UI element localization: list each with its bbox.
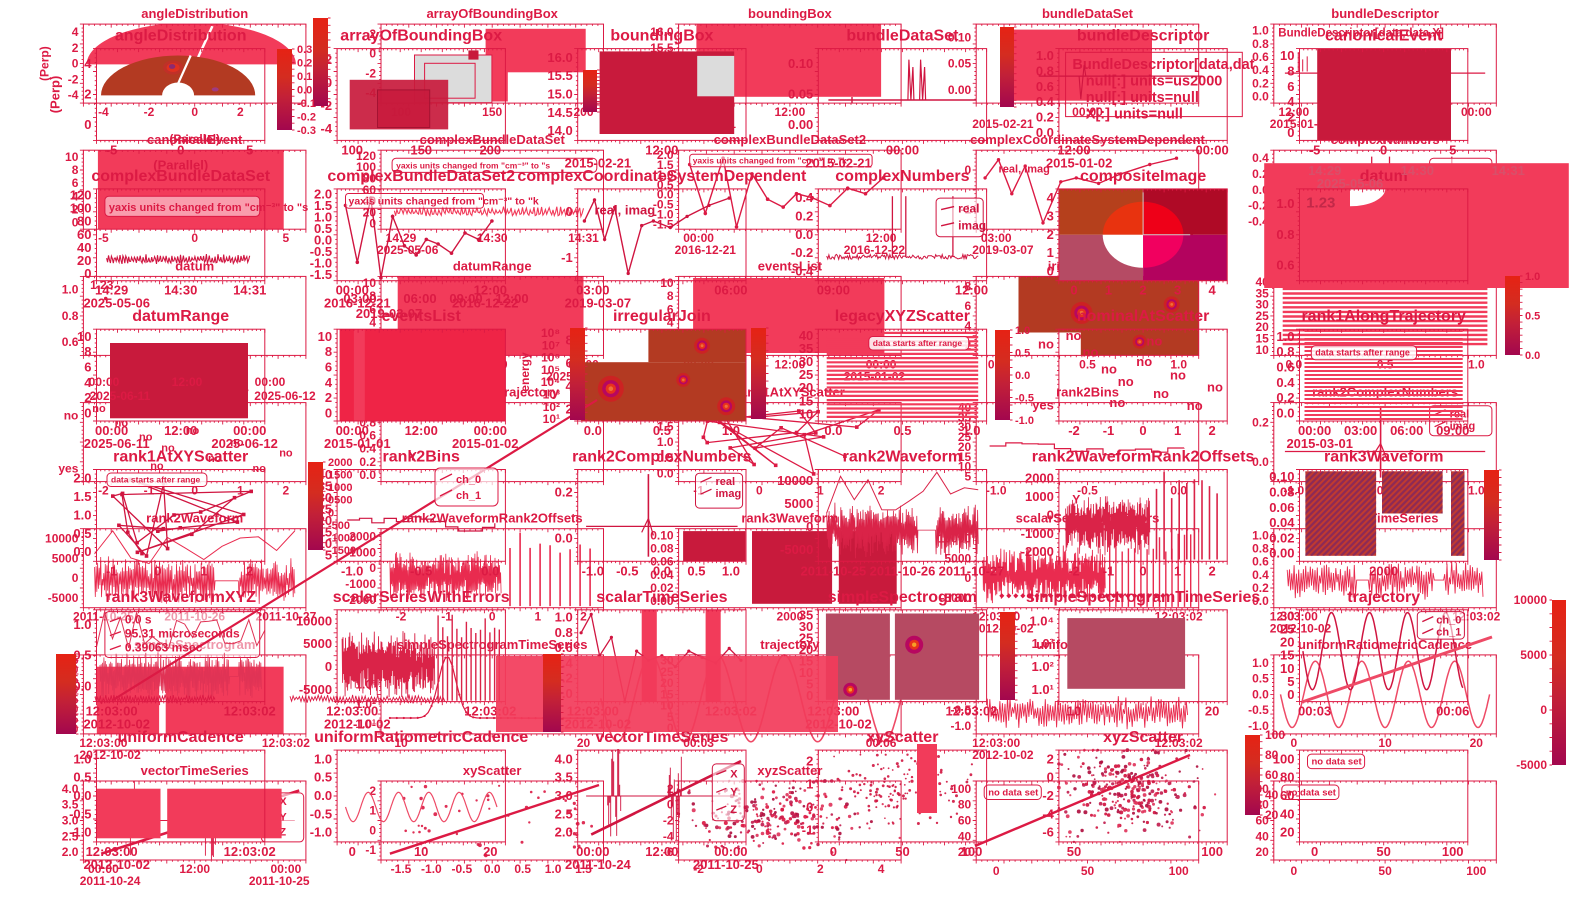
svg-text:0: 0 (369, 561, 376, 575)
svg-text:1.0: 1.0 (1468, 484, 1485, 498)
svg-text:100: 100 (1201, 844, 1223, 859)
svg-text:0: 0 (177, 142, 184, 157)
svg-text:0.05: 0.05 (788, 87, 813, 102)
svg-text:angleDistribution: angleDistribution (115, 28, 247, 45)
svg-text:rank2WaveformRank2Offsets: rank2WaveformRank2Offsets (402, 511, 583, 526)
svg-text:0.0: 0.0 (1015, 370, 1030, 382)
svg-text:2.5: 2.5 (555, 806, 573, 821)
svg-text:-1.0: -1.0 (986, 484, 1007, 498)
svg-text:12:00: 12:00 (179, 862, 210, 876)
svg-text:0: 0 (830, 844, 837, 859)
svg-text:0: 0 (1047, 264, 1054, 279)
svg-text:0: 0 (191, 231, 198, 245)
svg-text:rank2ComplexNumbers: rank2ComplexNumbers (572, 449, 752, 466)
svg-text:2: 2 (325, 390, 332, 405)
svg-text:-0.5: -0.5 (1015, 393, 1034, 405)
svg-text:20: 20 (1265, 808, 1279, 822)
svg-text:no: no (1066, 328, 1082, 343)
svg-text:12:03:02: 12:03:02 (262, 736, 310, 750)
svg-text:-0.5: -0.5 (1248, 703, 1269, 717)
svg-text:-1500: -1500 (328, 545, 356, 557)
svg-text:yaxis units changed from "cm⁻³: yaxis units changed from "cm⁻³" to "k (349, 196, 539, 208)
svg-text:6: 6 (325, 360, 332, 375)
svg-text:ch_0: ch_0 (456, 474, 481, 486)
svg-text:80: 80 (1265, 748, 1279, 762)
svg-text:2000: 2000 (1025, 471, 1054, 486)
svg-text:2015-01-02: 2015-01-02 (452, 436, 519, 451)
svg-text:14.5: 14.5 (547, 105, 572, 120)
svg-text:4: 4 (878, 862, 885, 876)
svg-text:0.05: 0.05 (948, 57, 972, 71)
svg-text:0.5: 0.5 (1252, 672, 1269, 686)
svg-text:0.8: 0.8 (62, 309, 79, 323)
svg-text:12:00: 12:00 (955, 283, 988, 298)
svg-text:-2: -2 (68, 72, 79, 86)
svg-text:100: 100 (951, 782, 971, 796)
svg-text:00:00: 00:00 (255, 375, 286, 389)
svg-text:5000: 5000 (784, 496, 813, 511)
svg-text:0: 0 (72, 57, 79, 71)
svg-text:0.5: 0.5 (1015, 348, 1030, 360)
svg-text:60: 60 (1265, 768, 1279, 782)
svg-text:2011-10-25: 2011-10-25 (693, 857, 759, 872)
svg-text:0.00: 0.00 (1269, 546, 1294, 561)
svg-text:0.0: 0.0 (1252, 90, 1269, 104)
svg-text:12:00: 12:00 (495, 291, 528, 306)
svg-text:0.5: 0.5 (314, 770, 332, 785)
svg-text:0: 0 (806, 519, 813, 534)
svg-text:0.00: 0.00 (788, 117, 813, 132)
svg-text:2000: 2000 (328, 457, 352, 469)
svg-text:0.0: 0.0 (314, 788, 332, 803)
svg-text:X: X (730, 769, 738, 781)
svg-text:(Perp): (Perp) (48, 76, 63, 114)
svg-text:-1.5: -1.5 (391, 862, 412, 876)
svg-text:0.2: 0.2 (1252, 415, 1269, 429)
svg-text:1: 1 (806, 777, 813, 792)
svg-text:10: 10 (318, 329, 332, 344)
svg-text:real, imag: real, imag (595, 203, 656, 218)
svg-text:-2: -2 (144, 105, 155, 119)
svg-text:boundingBox: boundingBox (610, 28, 713, 45)
svg-text:1.5: 1.5 (73, 489, 91, 504)
svg-text:4: 4 (84, 56, 92, 71)
svg-text:0: 0 (1380, 142, 1387, 157)
svg-text:2025-06-12: 2025-06-12 (254, 389, 316, 403)
svg-text:10: 10 (1067, 704, 1081, 719)
svg-text:12:00: 12:00 (172, 375, 203, 389)
svg-text:xyScatter: xyScatter (463, 763, 522, 778)
svg-text:1.0: 1.0 (73, 751, 91, 766)
svg-text:xyzScatter: xyzScatter (1103, 729, 1183, 746)
svg-text:0.5: 0.5 (1525, 311, 1540, 323)
svg-text:0.10: 0.10 (1269, 469, 1294, 484)
svg-text:2: 2 (580, 610, 587, 624)
svg-text:8: 8 (667, 289, 674, 303)
svg-text:4.0: 4.0 (555, 751, 573, 766)
svg-text:1.0: 1.0 (722, 563, 740, 578)
svg-text:0.5: 0.5 (73, 526, 91, 541)
svg-text:5: 5 (283, 231, 290, 245)
svg-text:0.0: 0.0 (824, 423, 842, 438)
svg-text:0.8: 0.8 (1036, 64, 1054, 79)
svg-text:bundleDataSet: bundleDataSet (846, 28, 959, 45)
svg-text:0.0: 0.0 (1276, 405, 1294, 420)
svg-text:14:30: 14:30 (1401, 163, 1434, 178)
svg-text:-2: -2 (1068, 423, 1080, 438)
svg-text:40: 40 (958, 829, 972, 843)
svg-text:energy: energy (518, 352, 532, 392)
svg-text:-0.2: -0.2 (297, 112, 316, 124)
svg-text:2: 2 (84, 87, 91, 102)
svg-text:datumRange: datumRange (453, 258, 532, 273)
svg-text:rank3Waveform: rank3Waveform (741, 511, 838, 526)
svg-text:100: 100 (1265, 728, 1285, 742)
svg-text:0.0: 0.0 (73, 788, 91, 803)
svg-text:00:00: 00:00 (1461, 105, 1492, 119)
svg-text:0: 0 (349, 844, 356, 859)
svg-text:1: 1 (1105, 283, 1112, 298)
svg-text:0.06: 0.06 (1269, 500, 1294, 515)
svg-text:rank2Waveform: rank2Waveform (843, 449, 962, 466)
svg-text:-4: -4 (68, 88, 79, 102)
svg-text:0: 0 (565, 204, 572, 219)
svg-text:imag: imag (958, 219, 986, 233)
svg-text:-2: -2 (1042, 788, 1054, 803)
svg-text:2015-02-21: 2015-02-21 (972, 117, 1034, 131)
svg-text:150: 150 (482, 105, 502, 119)
svg-text:2016-12-21: 2016-12-21 (675, 243, 737, 257)
svg-text:1.0: 1.0 (62, 283, 79, 297)
svg-text:no: no (1170, 368, 1186, 383)
svg-text:real: real (958, 202, 979, 216)
svg-text:2: 2 (72, 41, 79, 55)
svg-text:1: 1 (1047, 245, 1054, 260)
svg-text:10: 10 (65, 150, 79, 164)
svg-text:arrayOfBoundingBox: arrayOfBoundingBox (340, 28, 502, 45)
svg-text:-1000: -1000 (1021, 526, 1054, 541)
svg-text:10: 10 (1255, 343, 1269, 357)
svg-text:no data set: no data set (1312, 757, 1363, 768)
svg-text:14:30: 14:30 (477, 231, 508, 245)
svg-text:-0.1: -0.1 (297, 98, 316, 110)
svg-text:1.0³: 1.0³ (1031, 636, 1054, 651)
svg-text:-1.0: -1.0 (69, 825, 91, 840)
svg-text:-5: -5 (106, 142, 118, 157)
svg-text:0: 0 (1139, 563, 1146, 578)
svg-text:0.04: 0.04 (1269, 515, 1295, 530)
svg-text:1: 1 (200, 563, 207, 578)
svg-text:10: 10 (799, 406, 813, 421)
svg-text:0.6: 0.6 (1276, 360, 1294, 375)
svg-text:100: 100 (341, 142, 363, 157)
svg-text:12:00: 12:00 (645, 142, 678, 157)
svg-text:50: 50 (895, 844, 909, 859)
svg-text:4: 4 (1208, 283, 1216, 298)
svg-text:60: 60 (1280, 788, 1294, 803)
svg-text:6: 6 (1287, 79, 1294, 94)
svg-text:2: 2 (369, 784, 376, 798)
svg-text:0.4: 0.4 (1252, 151, 1269, 165)
svg-text:-2000: -2000 (1021, 544, 1054, 559)
svg-text:no: no (64, 409, 79, 423)
svg-text:-1: -1 (561, 250, 573, 265)
svg-text:0: 0 (1311, 844, 1318, 859)
svg-text:0.4: 0.4 (795, 190, 814, 205)
svg-text:boundingBox: boundingBox (748, 6, 833, 21)
svg-text:2.0: 2.0 (555, 825, 573, 840)
svg-text:10¹: 10¹ (543, 412, 560, 426)
svg-text:0: 0 (1290, 736, 1297, 750)
svg-text:0: 0 (325, 659, 332, 674)
svg-text:06:00: 06:00 (1390, 423, 1423, 438)
svg-text:2: 2 (246, 563, 253, 578)
svg-text:bundleDescriptor: bundleDescriptor (1077, 28, 1209, 45)
svg-text:0.00: 0.00 (948, 83, 972, 97)
svg-text:-2: -2 (663, 814, 674, 828)
svg-text:0.3: 0.3 (297, 44, 312, 56)
svg-text:15.0: 15.0 (547, 87, 572, 102)
svg-text:bundleDescriptor: bundleDescriptor (1331, 6, 1439, 21)
svg-text:0.8: 0.8 (1252, 542, 1269, 556)
svg-text:0.5: 0.5 (687, 563, 705, 578)
svg-text:5: 5 (246, 142, 253, 157)
svg-text:12:03:02: 12:03:02 (224, 844, 276, 859)
svg-text:real: real (716, 476, 736, 488)
svg-text:complexCoordinateSystemDepende: complexCoordinateSystemDependent (517, 168, 807, 185)
svg-text:3: 3 (1174, 283, 1181, 298)
svg-text:150: 150 (410, 142, 432, 157)
svg-text:00:00: 00:00 (886, 142, 919, 157)
svg-text:complexNumbers: complexNumbers (835, 168, 969, 185)
svg-text:0: 0 (1290, 864, 1297, 878)
svg-text:-1.0: -1.0 (951, 719, 972, 733)
svg-text:09:00: 09:00 (449, 291, 482, 306)
svg-text:trajectory: trajectory (1347, 589, 1420, 606)
svg-text:2012-10-02: 2012-10-02 (83, 857, 150, 872)
svg-text:nominalAtScatter: nominalAtScatter (1077, 308, 1209, 325)
svg-text:2: 2 (817, 862, 824, 876)
svg-text:vectorTimeSeries: vectorTimeSeries (141, 763, 249, 778)
svg-text:4: 4 (325, 375, 333, 390)
svg-text:0.4: 0.4 (1276, 375, 1295, 390)
svg-text:0.0: 0.0 (584, 423, 602, 438)
svg-text:no: no (1153, 386, 1169, 401)
svg-text:2: 2 (237, 105, 244, 119)
svg-text:1.0: 1.0 (1036, 48, 1054, 63)
svg-text:2: 2 (1208, 423, 1215, 438)
svg-text:1: 1 (1174, 423, 1181, 438)
svg-text:3: 3 (1047, 208, 1054, 223)
svg-text:-1: -1 (106, 563, 118, 578)
svg-text:0.0: 0.0 (481, 563, 499, 578)
svg-text:-5000: -5000 (299, 682, 332, 697)
svg-text:2011-10-25: 2011-10-25 (801, 563, 867, 578)
svg-text:-0.2: -0.2 (791, 245, 813, 260)
svg-text:uniformCadence: uniformCadence (118, 729, 244, 746)
svg-text:0.0: 0.0 (1252, 687, 1269, 701)
svg-text:16.0: 16.0 (547, 50, 572, 65)
svg-text:canonicalEvent: canonicalEvent (1325, 28, 1443, 45)
svg-text:-4: -4 (98, 105, 109, 119)
svg-text:2019-03-07: 2019-03-07 (972, 243, 1034, 257)
svg-text:1.0: 1.0 (314, 751, 332, 766)
svg-text:20: 20 (1255, 845, 1269, 859)
svg-text:0.4: 0.4 (1036, 94, 1055, 109)
svg-text:20: 20 (1205, 704, 1219, 719)
svg-text:-4: -4 (663, 829, 674, 843)
svg-text:X[:] units=null: X[:] units=null (1086, 106, 1183, 122)
svg-text:0: 0 (1047, 507, 1054, 522)
svg-text:00:03: 00:03 (1298, 704, 1331, 719)
svg-text:0.08: 0.08 (650, 542, 674, 556)
svg-text:2000: 2000 (1369, 563, 1398, 578)
svg-text:compositeImage: compositeImage (1080, 168, 1206, 185)
svg-text:1.0: 1.0 (73, 617, 91, 632)
svg-text:-2: -2 (396, 610, 407, 624)
svg-text:8: 8 (1287, 64, 1294, 79)
svg-text:-0.4: -0.4 (791, 264, 814, 279)
svg-text:1.0: 1.0 (1252, 24, 1269, 38)
svg-text:8: 8 (84, 344, 91, 359)
svg-text:0: 0 (1540, 703, 1547, 717)
svg-text:12:03:02: 12:03:02 (945, 704, 997, 719)
svg-text:0.5: 0.5 (514, 862, 531, 876)
svg-text:real, imag: real, imag (999, 163, 1050, 175)
svg-text:5000: 5000 (303, 636, 332, 651)
svg-text:-5000: -5000 (1516, 758, 1547, 772)
svg-text:200: 200 (479, 142, 501, 157)
svg-text:imag: imag (716, 488, 742, 500)
svg-text:rank3WaveformXYZ: rank3WaveformXYZ (105, 589, 256, 606)
svg-text:100: 100 (1442, 844, 1464, 859)
svg-text:0.2: 0.2 (1036, 109, 1054, 124)
svg-text:8: 8 (72, 163, 79, 177)
svg-text:0.02: 0.02 (1269, 530, 1294, 545)
svg-text:0: 0 (72, 571, 79, 585)
svg-text:09:00: 09:00 (817, 283, 850, 298)
svg-text:0: 0 (84, 266, 91, 281)
svg-text:0500: 0500 (328, 495, 352, 507)
svg-text:2: 2 (283, 484, 290, 498)
svg-text:1.0²: 1.0² (1031, 659, 1054, 674)
svg-text:3.0: 3.0 (555, 788, 573, 803)
svg-text:50: 50 (1376, 844, 1390, 859)
svg-text:rank1AlongTrajectory: rank1AlongTrajectory (1301, 308, 1466, 325)
svg-text:2011-10-25: 2011-10-25 (249, 874, 310, 888)
svg-text:10: 10 (1378, 736, 1392, 750)
svg-text:2: 2 (1139, 283, 1146, 298)
svg-text:6: 6 (84, 360, 91, 375)
svg-text:10: 10 (77, 329, 91, 344)
svg-text:0.0: 0.0 (657, 467, 674, 481)
svg-text:2025-05-06: 2025-05-06 (1317, 176, 1384, 191)
svg-text:datumRange: datumRange (132, 308, 229, 325)
svg-text:0: 0 (325, 405, 332, 420)
svg-text:0.0: 0.0 (1525, 350, 1540, 362)
svg-text:0.6: 0.6 (1036, 79, 1054, 94)
svg-text:3.5: 3.5 (555, 770, 573, 785)
svg-text:00:06: 00:06 (1436, 704, 1469, 719)
svg-text:-0.5: -0.5 (69, 806, 91, 821)
svg-text:14:31: 14:31 (1492, 163, 1525, 178)
svg-text:data starts after range: data starts after range (873, 338, 963, 348)
svg-text:2025-06-11: 2025-06-11 (90, 389, 151, 403)
svg-text:simpleSpectrogram: simpleSpectrogram (828, 589, 977, 606)
svg-text:-1.0: -1.0 (341, 563, 363, 578)
svg-text:xyScatter: xyScatter (866, 729, 938, 746)
svg-text:-1.0: -1.0 (421, 862, 442, 876)
svg-text:50: 50 (1067, 844, 1081, 859)
svg-text:Y: Y (730, 786, 738, 798)
svg-text:-2: -2 (98, 484, 109, 498)
svg-text:20: 20 (577, 736, 591, 750)
svg-text:14.0: 14.0 (547, 123, 572, 138)
svg-text:no: no (1187, 398, 1203, 413)
svg-text:0: 0 (328, 507, 334, 519)
svg-text:80: 80 (1280, 770, 1294, 785)
svg-text:1000: 1000 (1025, 489, 1054, 504)
svg-text:0.2: 0.2 (359, 455, 376, 469)
svg-text:Z: Z (730, 804, 737, 816)
svg-text:0.8: 0.8 (1276, 227, 1294, 242)
svg-text:0.0: 0.0 (73, 544, 91, 559)
svg-text:20: 20 (483, 844, 497, 859)
svg-text:rank2WaveformRank2Offsets: rank2WaveformRank2Offsets (1032, 449, 1255, 466)
svg-text:complexBundleDataSet2: complexBundleDataSet2 (714, 132, 866, 147)
svg-text:1.0: 1.0 (1015, 325, 1030, 337)
svg-text:scalarSeriesWithErrors: scalarSeriesWithErrors (333, 589, 510, 606)
svg-text:1500: 1500 (328, 470, 352, 482)
svg-text:-4: -4 (321, 121, 333, 136)
svg-text:1.0¹: 1.0¹ (1031, 682, 1053, 697)
svg-text:0.8: 0.8 (555, 625, 573, 640)
svg-text:-5000: -5000 (780, 542, 813, 557)
svg-text:10000: 10000 (296, 613, 332, 628)
svg-text:-6: -6 (1042, 825, 1054, 840)
svg-text:4: 4 (72, 25, 79, 39)
svg-text:2: 2 (1287, 109, 1294, 124)
svg-text:-5: -5 (1309, 142, 1321, 157)
svg-text:0.10: 0.10 (650, 528, 674, 542)
svg-text:10: 10 (1280, 48, 1294, 63)
svg-text:0: 0 (84, 117, 91, 132)
svg-text:0.5: 0.5 (893, 423, 911, 438)
svg-text:2: 2 (1047, 227, 1054, 242)
svg-text:06:00: 06:00 (403, 291, 436, 306)
svg-text:-2: -2 (365, 67, 376, 81)
svg-text:0.2: 0.2 (1276, 390, 1294, 405)
svg-text:1.0: 1.0 (1468, 357, 1485, 371)
svg-text:no data set: no data set (988, 788, 1039, 799)
svg-text:0: 0 (489, 610, 496, 624)
svg-text:40: 40 (1280, 806, 1294, 821)
svg-text:data starts after range: data starts after range (1315, 348, 1410, 358)
svg-text:canonicalEvent: canonicalEvent (147, 132, 243, 147)
svg-text:0.5: 0.5 (653, 423, 671, 438)
svg-text:-1: -1 (1103, 423, 1115, 438)
svg-text:-1: -1 (802, 822, 814, 837)
svg-text:2011-10-24: 2011-10-24 (80, 874, 141, 888)
svg-text:10000: 10000 (1514, 593, 1548, 607)
svg-text:0: 0 (191, 105, 198, 119)
svg-text:2: 2 (806, 754, 813, 769)
svg-text:0.0: 0.0 (297, 85, 312, 97)
svg-text:1.0: 1.0 (1276, 196, 1294, 211)
svg-text:5: 5 (1449, 142, 1456, 157)
svg-text:0: 0 (369, 823, 376, 837)
svg-text:0.2: 0.2 (1252, 76, 1269, 90)
